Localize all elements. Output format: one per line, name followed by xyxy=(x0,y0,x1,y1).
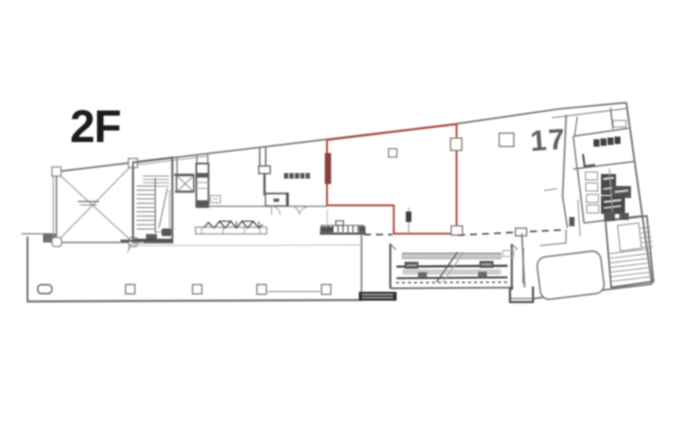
svg-text:17: 17 xyxy=(529,124,567,158)
svg-text:2F: 2F xyxy=(70,101,121,152)
